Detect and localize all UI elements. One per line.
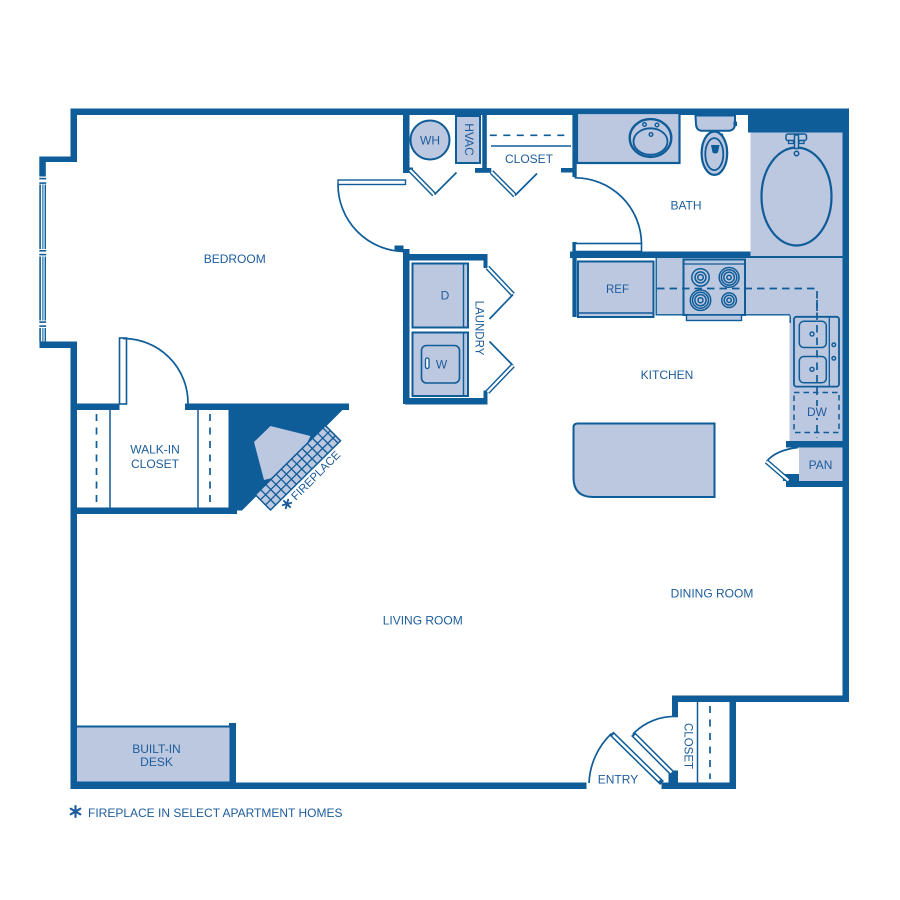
svg-text:CLOSET: CLOSET [131, 457, 180, 471]
svg-text:BATH: BATH [670, 199, 701, 213]
svg-text:BUILT-IN: BUILT-IN [132, 742, 180, 756]
svg-text:PAN: PAN [809, 458, 833, 472]
svg-text:HVAC: HVAC [462, 123, 476, 156]
svg-text:ENTRY: ENTRY [598, 773, 638, 787]
svg-text:KITCHEN: KITCHEN [641, 368, 694, 382]
svg-text:D: D [441, 289, 450, 303]
svg-text:DW: DW [807, 405, 828, 419]
svg-text:W: W [436, 358, 448, 372]
svg-text:CLOSET: CLOSET [681, 723, 693, 769]
svg-text:BEDROOM: BEDROOM [204, 252, 266, 266]
svg-text:DINING ROOM: DINING ROOM [671, 587, 754, 601]
svg-text:LIVING ROOM: LIVING ROOM [383, 614, 463, 628]
svg-text:FIREPLACE IN SELECT APARTMENT: FIREPLACE IN SELECT APARTMENT HOMES [88, 806, 343, 820]
svg-text:LAUNDRY: LAUNDRY [472, 301, 484, 356]
svg-text:WALK-IN: WALK-IN [130, 443, 180, 457]
svg-text:WH: WH [420, 134, 440, 148]
svg-text:DESK: DESK [140, 755, 173, 769]
svg-text:CLOSET: CLOSET [505, 152, 554, 166]
svg-text:REF: REF [606, 284, 629, 296]
